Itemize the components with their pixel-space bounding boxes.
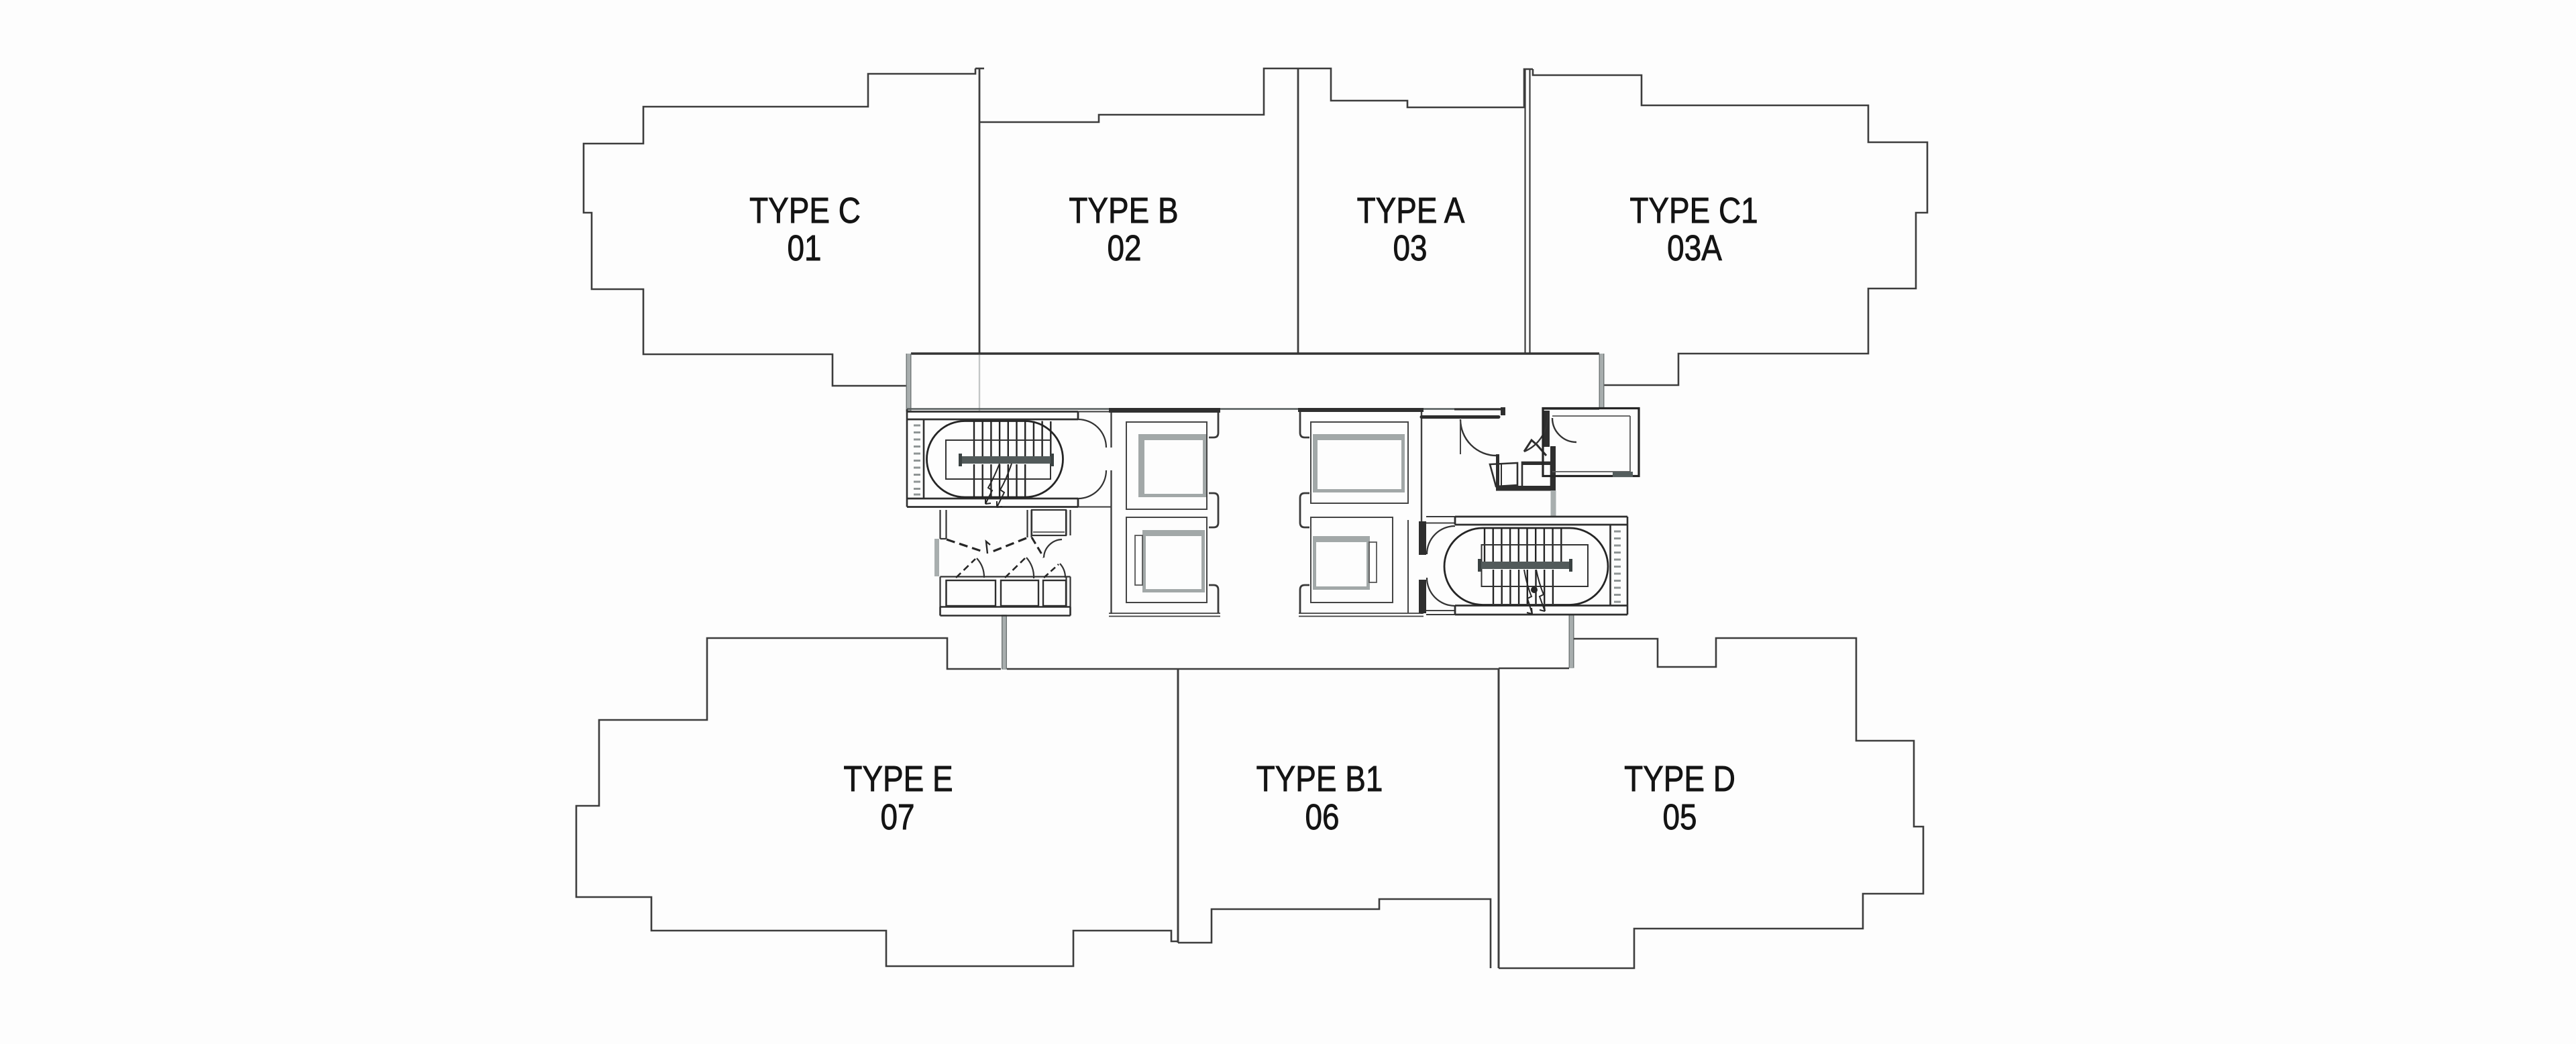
svg-text:07: 07	[880, 797, 914, 837]
svg-text:01: 01	[787, 228, 821, 268]
svg-text:03A: 03A	[1667, 228, 1722, 268]
svg-text:TYPE B: TYPE B	[1069, 191, 1178, 231]
svg-text:03: 03	[1393, 228, 1427, 268]
svg-text:TYPE C1: TYPE C1	[1629, 191, 1758, 231]
svg-text:TYPE E: TYPE E	[843, 759, 953, 799]
svg-text:02: 02	[1107, 228, 1141, 268]
svg-text:TYPE B1: TYPE B1	[1256, 759, 1383, 799]
svg-text:TYPE C: TYPE C	[749, 191, 861, 231]
svg-text:TYPE A: TYPE A	[1357, 191, 1465, 231]
svg-text:TYPE D: TYPE D	[1624, 759, 1735, 799]
svg-text:05: 05	[1662, 797, 1697, 837]
svg-text:06: 06	[1305, 797, 1339, 837]
